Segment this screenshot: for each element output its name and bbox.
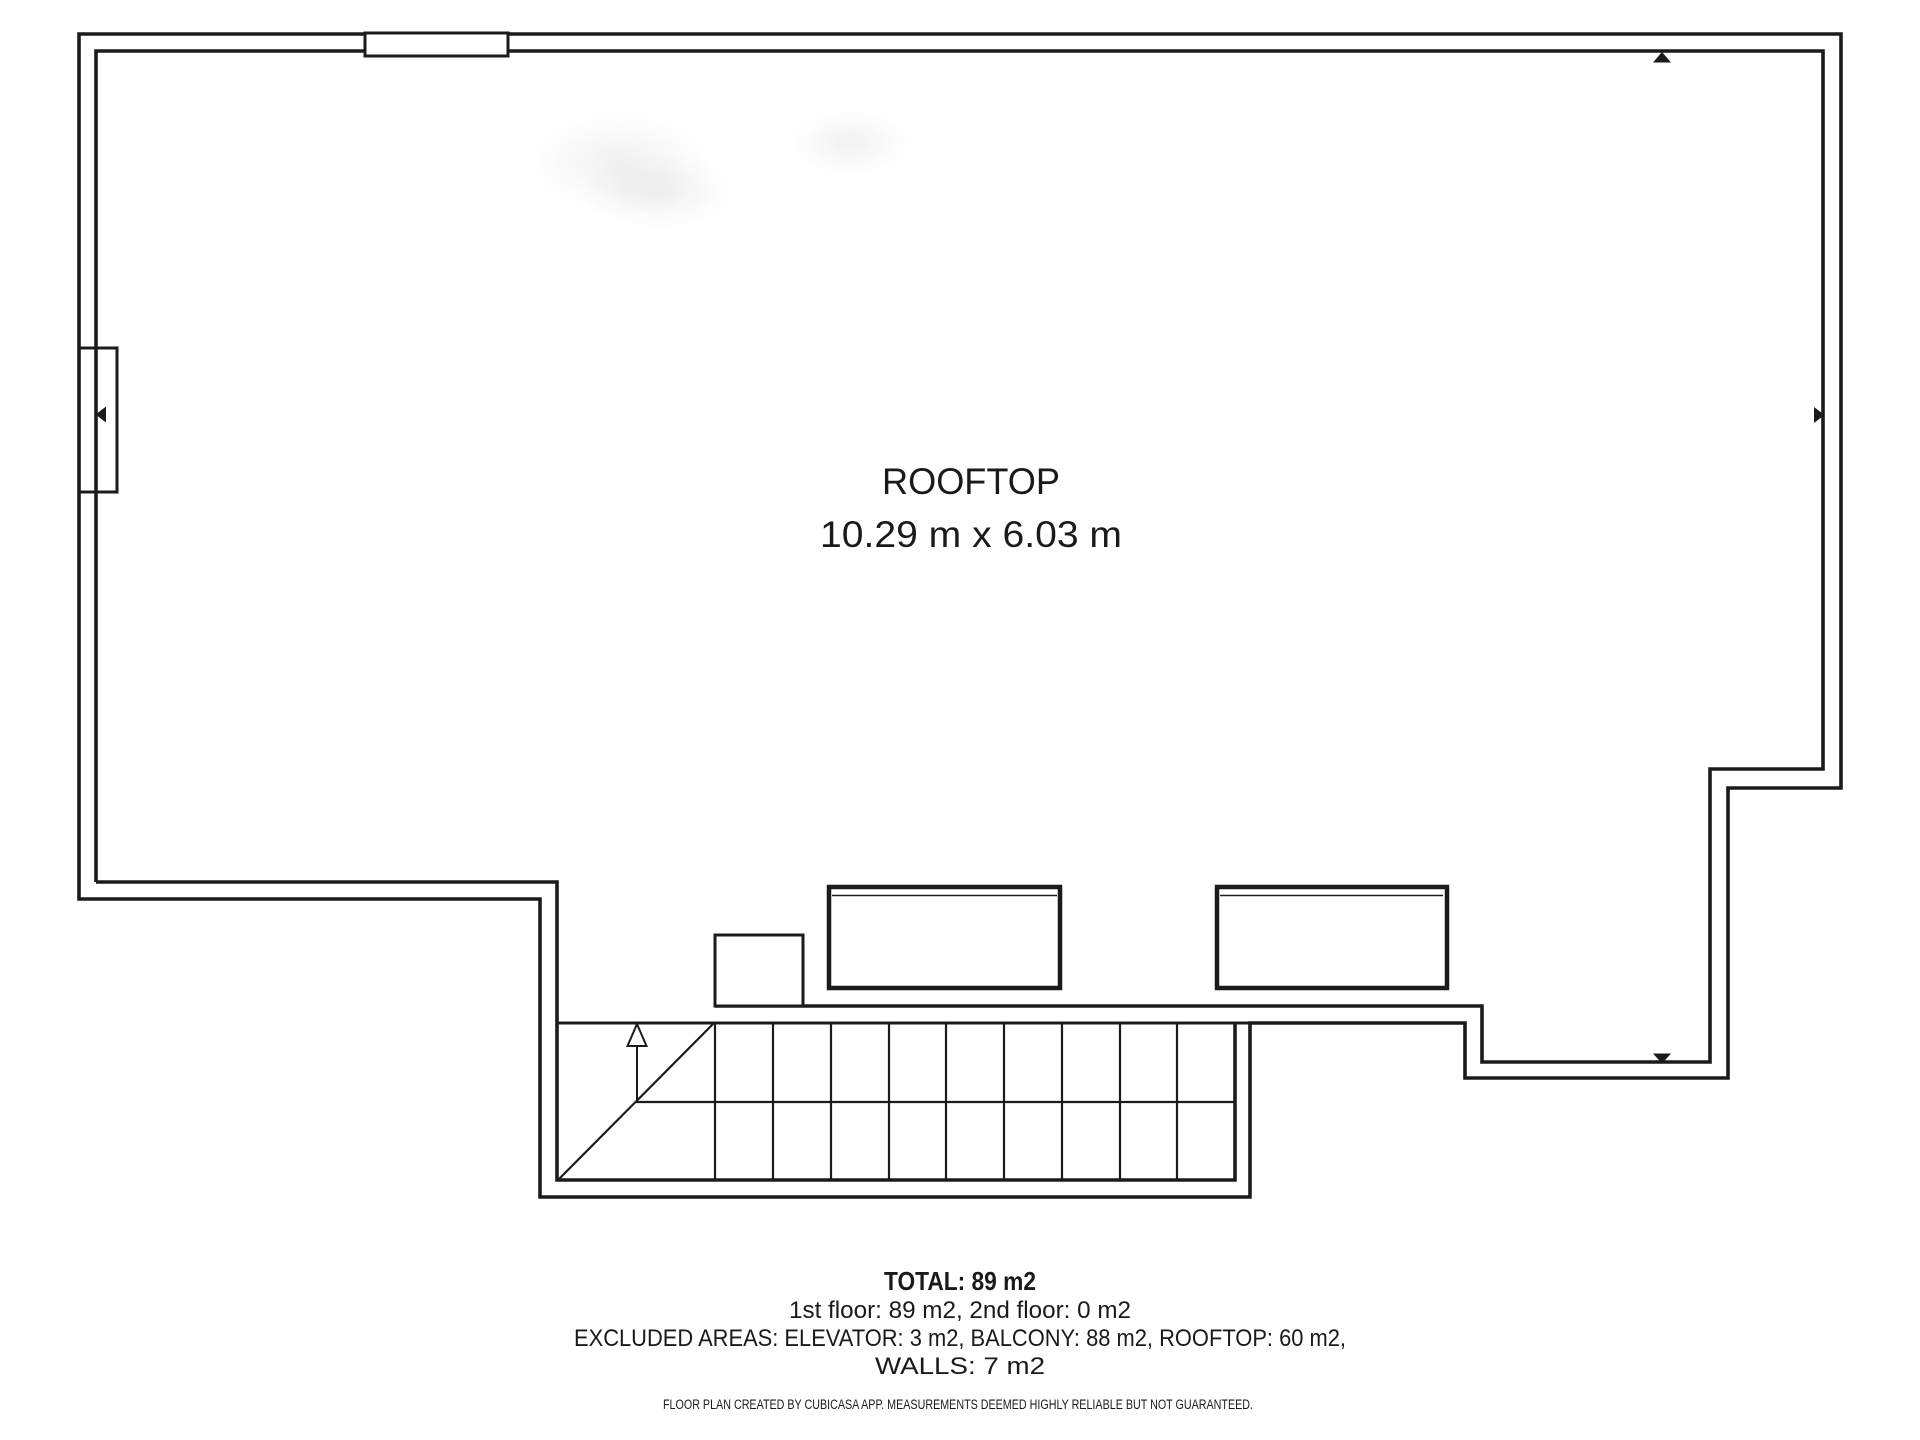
- room-label: ROOFTOP: [882, 461, 1060, 502]
- staircase: [558, 1023, 1235, 1180]
- summary-walls: WALLS: 7 m2: [875, 1353, 1045, 1380]
- wall-arrow-up-icon: [1653, 52, 1671, 63]
- summary-floors: 1st floor: 89 m2, 2nd floor: 0 m2: [789, 1297, 1131, 1324]
- stairs-up-arrowhead-icon: [628, 1024, 647, 1046]
- planter-box-1: [829, 887, 1060, 988]
- floor-plan-page: ROOFTOP 10.29 m x 6.03 m TOTAL: 89 m2 1s…: [0, 0, 1920, 1440]
- left-wall-window: [79, 348, 117, 492]
- top-wall-opening: [365, 33, 508, 56]
- room-dimensions: 10.29 m x 6.03 m: [820, 514, 1122, 555]
- summary-excluded-areas: EXCLUDED AREAS: ELEVATOR: 3 m2, BALCONY:…: [574, 1325, 1346, 1352]
- disclaimer-text: FLOOR PLAN CREATED BY CUBICASA APP. MEAS…: [663, 1397, 1253, 1412]
- elevator-shaft: [715, 935, 803, 1006]
- summary-total: TOTAL: 89 m2: [884, 1266, 1036, 1296]
- floor-plan-canvas: ROOFTOP 10.29 m x 6.03 m TOTAL: 89 m2 1s…: [0, 0, 1920, 1440]
- planter-box-2: [1217, 887, 1447, 988]
- stairwell-inner-wall-path: [96, 882, 1235, 1180]
